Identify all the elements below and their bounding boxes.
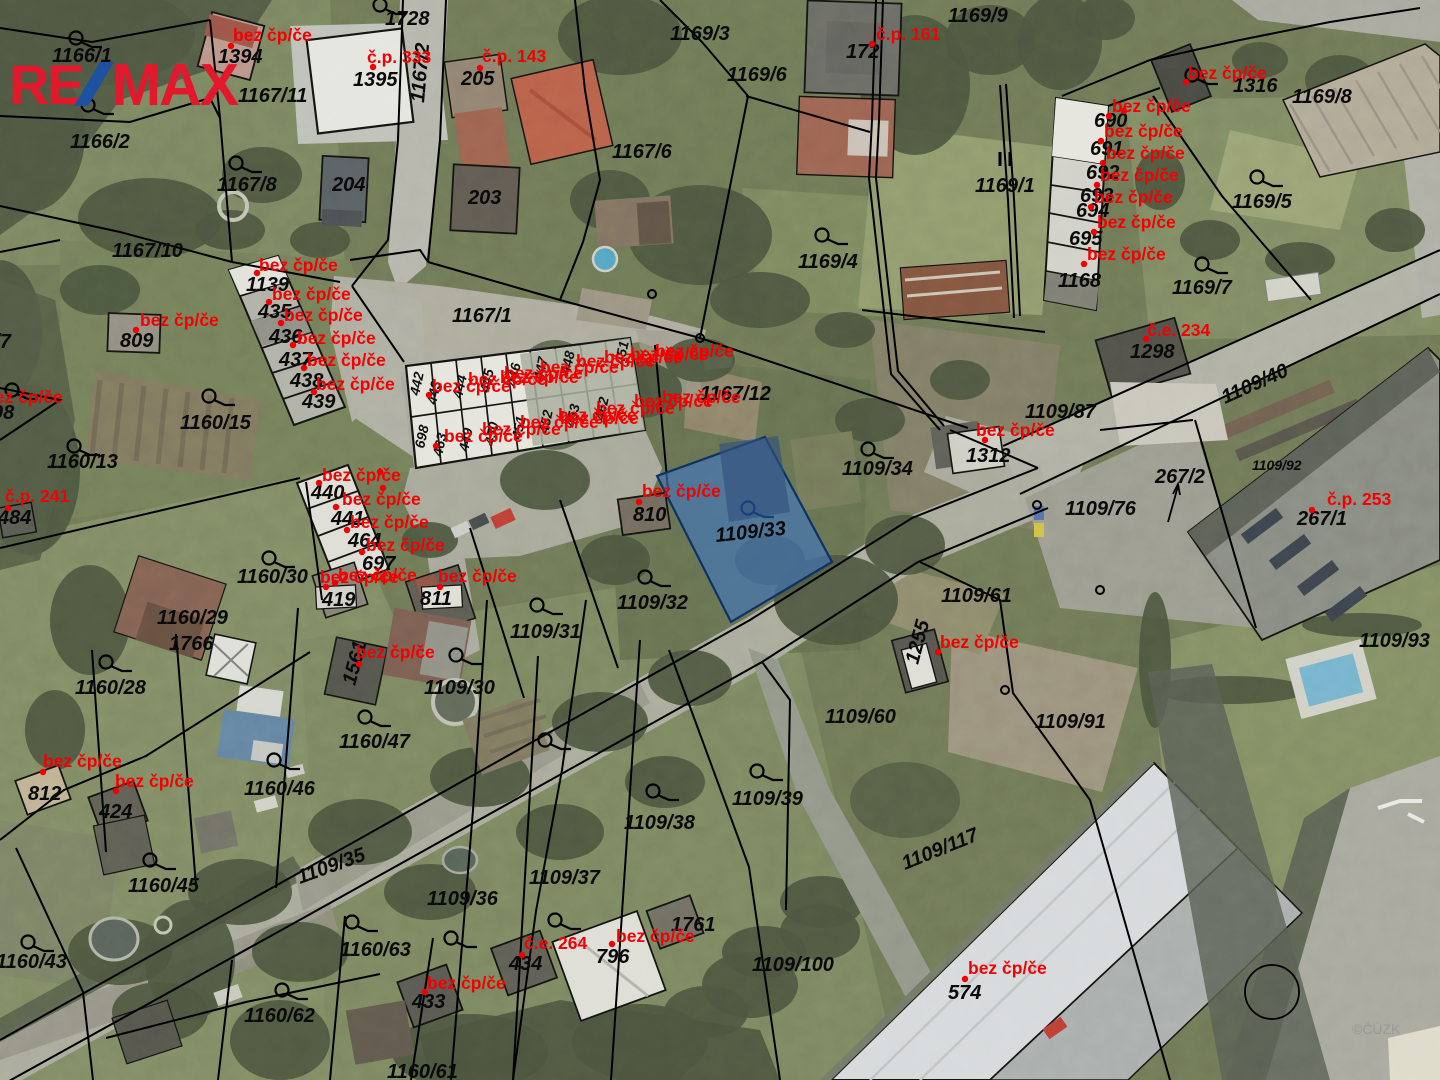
svg-text:433: 433	[411, 991, 445, 1013]
svg-text:RE: RE	[9, 53, 83, 116]
svg-text:bez čp/če: bez čp/če	[259, 255, 338, 275]
svg-text:1160/15: 1160/15	[180, 412, 252, 434]
svg-text:bez čp/če: bez čp/če	[604, 347, 683, 367]
svg-text:1167/10: 1167/10	[112, 240, 183, 262]
svg-text:1169/8: 1169/8	[1292, 86, 1353, 108]
svg-text:1312: 1312	[966, 445, 1011, 467]
svg-text:bez čp/če: bez čp/če	[366, 535, 445, 555]
svg-text:1160/45: 1160/45	[128, 875, 200, 897]
svg-text:bez čp/če: bez čp/če	[940, 632, 1019, 652]
svg-text:č.e. 264: č.e. 264	[524, 933, 588, 953]
svg-text:bez čp/če: bez čp/če	[322, 465, 401, 485]
svg-text:1160/43: 1160/43	[0, 951, 67, 973]
svg-text:1109/34: 1109/34	[842, 458, 913, 480]
svg-text:bez čp/če: bez čp/če	[1188, 63, 1267, 83]
svg-text:1167/6: 1167/6	[612, 141, 673, 163]
svg-text:1167/1: 1167/1	[452, 305, 512, 327]
svg-text:bez čp/če: bez čp/če	[616, 926, 695, 946]
svg-text:1160/46: 1160/46	[244, 778, 316, 800]
svg-text:1168: 1168	[1058, 270, 1102, 292]
svg-text:1169/4: 1169/4	[798, 251, 858, 273]
svg-text:bez čp/če: bez čp/če	[560, 408, 639, 428]
svg-text:1109/60: 1109/60	[825, 706, 896, 728]
svg-text:1109/30: 1109/30	[424, 677, 495, 699]
svg-text:bez čp/če: bez čp/če	[356, 642, 435, 662]
svg-text:1109/93: 1109/93	[1359, 630, 1430, 652]
svg-text:1160/63: 1160/63	[340, 939, 411, 961]
svg-text:1109/76: 1109/76	[1065, 498, 1137, 520]
svg-text:1109/91: 1109/91	[1035, 711, 1106, 733]
svg-text:440: 440	[310, 482, 344, 504]
svg-text:bez čp/če: bez čp/če	[307, 350, 386, 370]
svg-text:bez čp/če: bez čp/če	[438, 566, 517, 586]
svg-text:bez čp/če: bez čp/če	[350, 512, 429, 532]
svg-text:bez čp/če: bez čp/če	[233, 25, 312, 45]
svg-text:203: 203	[467, 187, 501, 209]
svg-text:1109/31: 1109/31	[510, 621, 581, 643]
svg-text:bez čp/če: bez čp/če	[1104, 121, 1183, 141]
svg-text:1160/47: 1160/47	[339, 731, 411, 753]
svg-text:434: 434	[508, 953, 542, 975]
svg-text:1160/61: 1160/61	[387, 1061, 458, 1080]
svg-text:bez čp/če: bez čp/če	[115, 771, 194, 791]
svg-text:267/1: 267/1	[1296, 508, 1347, 530]
svg-text:bez čp/če: bez čp/če	[427, 973, 506, 993]
svg-text:bez čp/če: bez čp/če	[1097, 212, 1176, 232]
svg-text:67/7: 67/7	[0, 331, 12, 353]
svg-text:1109/36: 1109/36	[427, 888, 499, 910]
svg-text:439: 439	[301, 391, 336, 413]
svg-text:1298: 1298	[1130, 341, 1175, 363]
svg-text:1160/30: 1160/30	[237, 566, 308, 588]
svg-text:1166/2: 1166/2	[70, 131, 130, 153]
svg-text:1167/11: 1167/11	[238, 85, 307, 107]
svg-text:bez čp/če: bez čp/če	[140, 310, 219, 330]
svg-text:bez čp/če: bez čp/če	[284, 305, 363, 325]
svg-text:bez čp/če: bez čp/če	[1100, 165, 1179, 185]
svg-text:811: 811	[420, 588, 452, 610]
svg-text:1766: 1766	[169, 633, 214, 655]
svg-text:424: 424	[98, 801, 132, 823]
svg-text:1109/39: 1109/39	[732, 788, 804, 810]
svg-text:č.p. 161: č.p. 161	[876, 24, 940, 44]
svg-text:1160/29: 1160/29	[157, 607, 229, 629]
svg-text:1109/38: 1109/38	[624, 812, 696, 834]
svg-text:205: 205	[460, 68, 495, 90]
svg-text:810: 810	[633, 504, 666, 526]
svg-text:1160/28: 1160/28	[75, 677, 147, 699]
svg-text:bez čp/če: bez čp/če	[316, 374, 395, 394]
svg-text:1109/92: 1109/92	[1252, 457, 1302, 473]
svg-text:1169/3: 1169/3	[670, 23, 730, 45]
svg-text:bez čp/če: bez čp/če	[272, 284, 351, 304]
svg-text:č.e. 234: č.e. 234	[1147, 320, 1211, 340]
svg-text:1109/32: 1109/32	[617, 592, 688, 614]
svg-text:1395: 1395	[353, 69, 398, 91]
svg-text:bez čp/če: bez čp/če	[1106, 143, 1185, 163]
svg-text:bez čp/če: bez čp/če	[320, 567, 399, 587]
svg-text:1160/13: 1160/13	[47, 451, 118, 473]
svg-text:č.p. 333: č.p. 333	[367, 47, 431, 67]
svg-text:bez čp/če: bez čp/če	[43, 751, 122, 771]
svg-text:1169/5: 1169/5	[1232, 191, 1293, 213]
svg-text:bez čp/če: bez čp/če	[968, 958, 1047, 978]
svg-text:204: 204	[331, 174, 365, 196]
svg-text:bez čp/če: bez čp/če	[976, 420, 1055, 440]
svg-text:796: 796	[596, 946, 630, 968]
svg-text:č.p. 241: č.p. 241	[5, 486, 69, 506]
svg-text:1169/1: 1169/1	[975, 175, 1035, 197]
svg-text:MAX: MAX	[112, 52, 239, 118]
svg-text:1169/6: 1169/6	[727, 64, 788, 86]
svg-text:1109/100: 1109/100	[752, 954, 834, 976]
svg-text:bez čp/če: bez čp/če	[297, 328, 376, 348]
svg-text:1167/8: 1167/8	[217, 174, 278, 196]
svg-text:č.p. 253: č.p. 253	[1327, 489, 1391, 509]
svg-text:bez čp/če: bez čp/če	[1094, 187, 1173, 207]
svg-text:bez čp/če: bez čp/če	[0, 387, 63, 407]
svg-text:bez čp/če: bez čp/če	[342, 489, 421, 509]
svg-text:574: 574	[948, 982, 981, 1004]
svg-text:1169/9: 1169/9	[948, 5, 1009, 27]
svg-text:812: 812	[28, 783, 61, 805]
svg-text:419: 419	[321, 589, 356, 611]
svg-text:1109/37: 1109/37	[529, 867, 601, 889]
svg-text:bez čp/če: bez čp/če	[662, 387, 741, 407]
svg-text:1160/62: 1160/62	[244, 1005, 315, 1027]
svg-text:267/2: 267/2	[1154, 466, 1205, 488]
svg-text:©ČÚZK: ©ČÚZK	[1352, 1021, 1401, 1037]
svg-text:bez čp/če: bez čp/če	[500, 367, 579, 387]
svg-text:bez čp/če: bez čp/če	[1087, 244, 1166, 264]
svg-text:č.p. 143: č.p. 143	[482, 46, 546, 66]
svg-text:484: 484	[0, 507, 31, 529]
svg-text:809: 809	[120, 330, 154, 352]
svg-text:1109/61: 1109/61	[941, 585, 1012, 607]
svg-text:bez čp/če: bez čp/če	[642, 481, 721, 501]
svg-text:1169/7: 1169/7	[1172, 277, 1233, 299]
